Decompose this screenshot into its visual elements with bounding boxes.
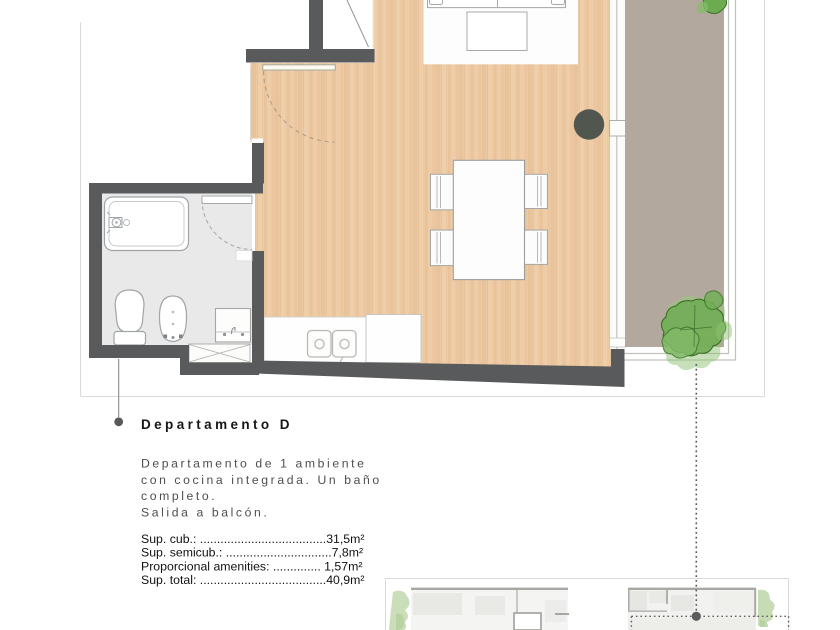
svg-text:Salida a balcón.: Salida a balcón.	[141, 506, 269, 520]
svg-text:con cocina integrada. Un baño: con cocina integrada. Un baño	[141, 473, 382, 487]
svg-text:Proporcional amenities: ......: Proporcional amenities: .............. 1…	[141, 559, 362, 573]
svg-text:Sup. semicub.: ...............: Sup. semicub.: .........................…	[141, 546, 363, 560]
svg-text:Sup. cub.: ...................: Sup. cub.: .............................…	[141, 532, 364, 546]
svg-text:completo.: completo.	[141, 489, 217, 503]
svg-text:Departamento de 1 ambiente: Departamento de 1 ambiente	[141, 457, 366, 471]
svg-text:Sup. total: ..................: Sup. total: ............................…	[141, 573, 364, 587]
svg-text:Departamento D: Departamento D	[141, 417, 293, 432]
